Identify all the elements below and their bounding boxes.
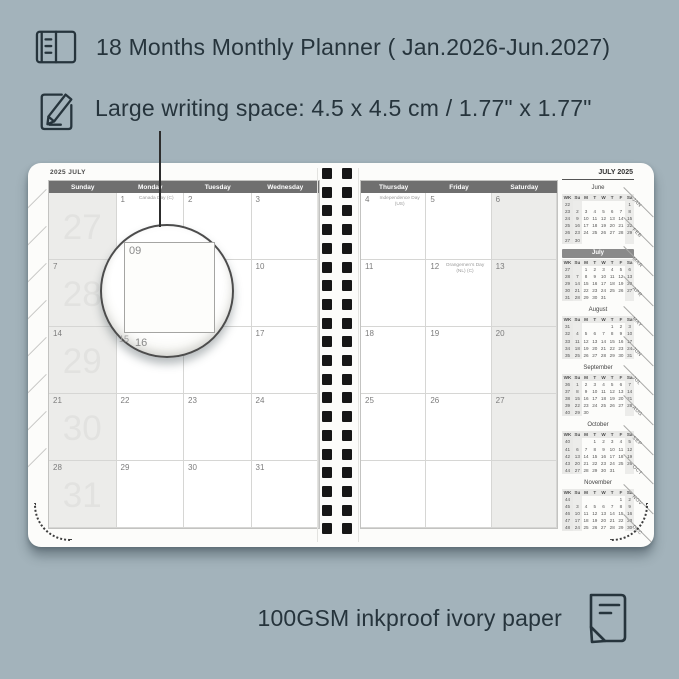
day-header: Thursday [361,181,426,193]
month-tab-jul: JUL [627,365,654,395]
mini-date: 18 [582,517,591,524]
mini-date: 5 [599,208,608,215]
mini-date: 21 [617,222,626,229]
calendar-cell: 2914 [49,327,117,394]
mini-dow-header: T [608,431,617,438]
date-number: 21 [53,396,62,405]
mini-date: 23 [617,345,626,352]
calendar-cell: 31 [252,461,320,528]
mini-date: 5 [582,330,591,337]
mini-dow-header: WK [562,194,573,201]
date-number: 28 [53,463,62,472]
mini-date: 10 [573,510,582,517]
mini-dow-header: T [590,431,599,438]
mini-dow-header: WK [562,259,573,266]
mini-date: 25 [617,460,626,467]
mini-date: 22 [582,287,591,294]
mini-dow-header: F [617,489,626,496]
mini-dow-header: M [582,194,591,201]
binding-hole [322,467,332,478]
magnified-date: 09 [129,245,141,257]
mini-date: 20 [573,460,582,467]
binding-hole [322,187,332,198]
day-header: Monday [117,181,185,193]
mini-date: 29 [582,294,591,301]
mini-dow-header: T [590,374,599,381]
mini-date: 19 [590,517,599,524]
sidebar-month-title: JULY 2025 [562,169,634,180]
mini-date: 23 [573,229,582,236]
mini-date: 9 [582,388,591,395]
mini-date [582,438,591,445]
mini-date: 18 [608,280,617,287]
date-number: 20 [496,329,505,338]
mini-date: 9 [590,273,599,280]
mini-date: 16 [582,395,591,402]
mini-date: 4 [582,503,591,510]
mini-date: 17 [590,395,599,402]
binding-hole [342,224,352,235]
mini-date: 15 [573,395,582,402]
binding-hole [342,411,352,422]
mini-date: 16 [617,338,626,345]
mini-date: 4 [573,330,582,337]
date-number: 26 [430,396,439,405]
mini-date: 27 [617,402,626,409]
mini-date: 2 [590,266,599,273]
mini-date: 30 [590,294,599,301]
date-number: 31 [256,463,265,472]
mini-dow-header: W [599,489,608,496]
paper-sheet-icon [578,590,630,646]
mini-date: 1 [582,266,591,273]
mini-date [582,201,591,208]
edge-tab-mark [28,337,47,362]
month-tab-jan: JAN [627,187,654,217]
mini-dow-header: T [590,489,599,496]
mini-dow-header: Su [573,374,582,381]
mini-date: 11 [573,338,582,345]
date-number: 14 [53,329,62,338]
magnified-date-below-right: 16 [135,337,147,349]
binding-hole [342,505,352,516]
date-number: 19 [430,329,439,338]
mini-date [573,266,582,273]
mini-date [573,438,582,445]
mini-date: 24 [590,402,599,409]
mini-date [608,409,617,416]
mini-date: 27 [590,352,599,359]
edge-tab-mark [28,263,47,288]
mini-date: 25 [608,287,617,294]
binding-hole [322,336,332,347]
mini-date: 18 [599,395,608,402]
date-number: 23 [188,396,197,405]
date-number: 17 [256,329,265,338]
mini-calendar-october: OctoberWKSuMTWTFSa4012345416789101112421… [562,421,634,474]
mini-week-number: 27 [562,237,573,244]
calendar-cell: 22 [117,394,185,461]
date-number: 2 [188,195,192,204]
mini-date [599,237,608,244]
binding-hole [322,505,332,516]
calendar-cell [361,461,426,528]
mini-week-number: 24 [562,215,573,222]
mini-week-number: 43 [562,460,573,467]
mini-date [573,201,582,208]
mini-date: 24 [573,524,582,531]
mini-week-number: 41 [562,446,573,453]
mini-date: 25 [582,524,591,531]
mini-week-number: 34 [562,345,573,352]
mini-date: 23 [590,287,599,294]
mini-date: 19 [608,395,617,402]
date-number: 3 [256,195,260,204]
callout-pointer-line [159,131,161,227]
mini-date: 29 [573,409,582,416]
mini-date: 6 [608,208,617,215]
month-tab-feb: FEB [627,217,654,247]
mini-dow-header: WK [562,374,573,381]
month-tab-sep: SEP [627,425,654,455]
calendar-cell: 10 [252,260,320,327]
mini-date: 25 [590,229,599,236]
mini-calendar-august: AugustWKSuMTWTFSa31123324567891033111213… [562,306,634,359]
mini-date [590,496,599,503]
calendar-cell: 27 [492,394,557,461]
edge-tab-mark [28,448,47,473]
month-tab-label: MAR [631,256,644,269]
binding-hole [322,243,332,254]
holiday-note: Canada Day (C) [133,196,181,202]
mini-date: 4 [590,208,599,215]
mini-dow-header: T [590,259,599,266]
date-number: 6 [496,195,500,204]
mini-date: 17 [582,222,591,229]
binding-hole [322,299,332,310]
binding-hole [342,262,352,273]
mini-date: 28 [599,352,608,359]
binding-hole [322,355,332,366]
calendar-cell: 12Orangemen's Day (NL) (C) [426,260,491,327]
mini-week-number: 44 [562,496,573,503]
day-header: Tuesday [184,181,252,193]
mini-date: 24 [599,287,608,294]
mini-dow-header: F [617,374,626,381]
mini-months: JuneWKSuMTWTFSa2212323456782491011121314… [562,184,634,531]
mini-date: 22 [573,402,582,409]
date-number: 13 [496,262,505,271]
mini-date [590,201,599,208]
mini-date: 28 [573,294,582,301]
planner-product-image: 18 Months Monthly Planner ( Jan.2026-Jun… [0,0,679,679]
mini-date: 2 [582,381,591,388]
mini-dow-header: F [617,431,626,438]
mini-date [617,467,626,474]
mini-calendar-title: July [562,249,634,258]
mini-date: 3 [573,503,582,510]
feature-paper-annotation: 100GSM inkproof ivory paper [257,590,630,646]
binding-hole [342,205,352,216]
mini-date: 20 [599,517,608,524]
edge-tab-mark [28,411,47,436]
binding-hole [342,243,352,254]
binding-hole [342,336,352,347]
mini-date: 5 [608,381,617,388]
open-planner-book-icon [33,27,79,67]
mini-date: 5 [617,266,626,273]
mini-week-number: 31 [562,323,573,330]
calendar-cell: 23 [184,394,252,461]
calendar-cell: 19 [426,327,491,394]
mini-dow-header: T [608,259,617,266]
mini-dow-header: Su [573,431,582,438]
mini-date: 11 [599,388,608,395]
month-tab-label: FEB [631,227,643,239]
binding-hole [322,486,332,497]
month-tab-label: JUL [631,375,642,386]
day-header: Wednesday [252,181,320,193]
mini-week-number: 27 [562,266,573,273]
calendar-cell: 20 [492,327,557,394]
calendar-cell: 25 [361,394,426,461]
mini-week-number: 32 [562,330,573,337]
binding-hole [322,523,332,534]
mini-date: 17 [573,517,582,524]
mini-date: 10 [582,215,591,222]
mini-date: 16 [590,280,599,287]
mini-date: 19 [582,345,591,352]
mini-date: 28 [582,467,591,474]
mini-date: 21 [582,460,591,467]
mini-date: 9 [573,215,582,222]
mini-calendar-grid: WKSuMTWTFSa40123454167891011124213141516… [562,431,634,474]
mini-date: 2 [599,438,608,445]
date-number: 29 [121,463,130,472]
date-number: 5 [430,195,434,204]
calendar-cell: 26 [426,394,491,461]
mini-date [608,201,617,208]
mini-date: 27 [608,229,617,236]
mini-date: 20 [608,222,617,229]
mini-dow-header: M [582,259,591,266]
binding-hole [342,392,352,403]
binding-hole [342,449,352,460]
week-number: 27 [49,193,116,259]
mini-date: 18 [573,345,582,352]
mini-date: 3 [582,208,591,215]
mini-calendar-grid: WKSuMTWTFSa27123456287891011121329141516… [562,259,634,302]
calendar-cell [492,461,557,528]
mini-date [617,409,626,416]
mini-week-number: 40 [562,409,573,416]
mini-date: 7 [617,208,626,215]
month-tab-apr: APR [627,276,654,306]
binding-hole [342,486,352,497]
mini-dow-header: T [590,194,599,201]
mini-date: 26 [590,524,599,531]
calendar-cell: 17 [252,327,320,394]
mini-date: 10 [608,446,617,453]
mini-date: 24 [582,229,591,236]
mini-date: 14 [582,453,591,460]
edge-tab-mark [28,226,47,251]
mini-dow-header: WK [562,489,573,496]
mini-week-number: 37 [562,388,573,395]
edge-tab-mark [28,189,47,214]
month-tab-label: JAN [631,197,643,209]
month-tab-label: MAY [631,316,643,328]
mini-date [590,323,599,330]
mini-dow-header: T [608,194,617,201]
mini-week-number: 46 [562,510,573,517]
mini-date: 20 [590,345,599,352]
mini-dow-header: F [617,194,626,201]
mini-date: 12 [599,215,608,222]
binding-hole [342,299,352,310]
mini-dow-header: Su [573,316,582,323]
mini-date: 25 [573,352,582,359]
mini-date: 28 [617,229,626,236]
binding-hole [342,355,352,366]
mini-date [599,323,608,330]
mini-date: 11 [608,273,617,280]
mini-date [617,294,626,301]
calendar-cell: 30 [184,461,252,528]
left-page-title: 2025 JULY [50,169,86,176]
calendar-cell: 5 [426,193,491,260]
calendar-cell [426,461,491,528]
month-tab-label: OCT [631,464,644,477]
mini-date: 6 [599,503,608,510]
day-header: Sunday [49,181,117,193]
mini-dow-header: W [599,374,608,381]
right-month-grid: ThursdayFridaySaturday4Independence Day … [360,180,558,529]
binding-hole [322,224,332,235]
mini-date: 10 [590,388,599,395]
mini-date: 18 [590,222,599,229]
pencil-on-paper-icon [36,84,78,132]
mini-date: 3 [608,438,617,445]
edge-tab-mark [28,300,47,325]
mini-date: 11 [617,446,626,453]
feature-months-annotation: 18 Months Monthly Planner ( Jan.2026-Jun… [33,27,610,67]
mini-dow-header: T [608,374,617,381]
mini-dow-header: Su [573,489,582,496]
mini-date: 3 [599,266,608,273]
binding-hole [322,280,332,291]
mini-date [582,496,591,503]
mini-date: 6 [590,330,599,337]
month-tab-label: AUG [631,405,644,418]
mini-date [599,496,608,503]
mini-date [608,237,617,244]
magnifier-circle: 09 15 16 [100,224,234,358]
mini-week-number: 22 [562,201,573,208]
mini-date: 1 [590,438,599,445]
month-tab-label: JUN [631,346,643,358]
feature-writing-space-annotation: Large writing space: 4.5 x 4.5 cm / 1.77… [36,84,592,132]
mini-date: 4 [608,266,617,273]
corner-stitching-left [34,503,72,541]
date-number: 27 [496,396,505,405]
mini-date: 4 [599,381,608,388]
binding-hole [342,374,352,385]
feature-months-text: 18 Months Monthly Planner ( Jan.2026-Jun… [96,34,610,61]
binding-hole [322,262,332,273]
mini-date: 5 [590,503,599,510]
binding-hole [322,318,332,329]
mini-week-number: 45 [562,503,573,510]
mini-date: 26 [617,287,626,294]
mini-date: 8 [582,273,591,280]
mini-week-number: 40 [562,438,573,445]
mini-date: 26 [599,229,608,236]
mini-dow-header: Su [573,259,582,266]
date-number: 18 [365,329,374,338]
mini-date: 24 [608,460,617,467]
magnified-date-below-left: 15 [119,334,129,344]
edge-tab-mark [28,374,47,399]
mini-dow-header: M [582,374,591,381]
mini-date: 30 [582,409,591,416]
date-number: 10 [256,262,265,271]
mini-date: 30 [617,352,626,359]
date-number: 1 [121,195,125,204]
calendar-cell: 3 [252,193,320,260]
mini-date: 2 [617,323,626,330]
binding-hole [342,467,352,478]
binding-hole [342,280,352,291]
mini-date [599,409,608,416]
mini-dow-header: W [599,194,608,201]
holiday-note: Orangemen's Day (NL) (C) [442,263,487,276]
binding-hole [342,168,352,179]
mini-date: 2 [573,208,582,215]
mini-date: 12 [582,338,591,345]
mini-date: 3 [590,381,599,388]
mini-date [590,237,599,244]
mini-date: 22 [608,345,617,352]
mini-week-number: 23 [562,208,573,215]
date-number: 25 [365,396,374,405]
mini-date [599,201,608,208]
date-number: 24 [256,396,265,405]
mini-date: 12 [590,510,599,517]
binding-hole [342,318,352,329]
mini-dow-header: W [599,316,608,323]
mini-date: 7 [573,273,582,280]
binding-hole [342,187,352,198]
mini-date: 21 [599,345,608,352]
mini-week-number: 48 [562,524,573,531]
date-number: 22 [121,396,130,405]
mini-date: 13 [590,338,599,345]
mini-date: 1 [608,323,617,330]
mini-date: 4 [617,438,626,445]
mini-date: 29 [590,467,599,474]
day-header: Friday [426,181,491,193]
mini-week-number: 35 [562,352,573,359]
mini-date: 1 [573,381,582,388]
mini-week-number: 25 [562,222,573,229]
binding-hole [322,449,332,460]
mini-week-number: 38 [562,395,573,402]
binding-hole [322,392,332,403]
mini-date [573,323,582,330]
date-number: 7 [53,262,57,271]
mini-date: 23 [582,402,591,409]
